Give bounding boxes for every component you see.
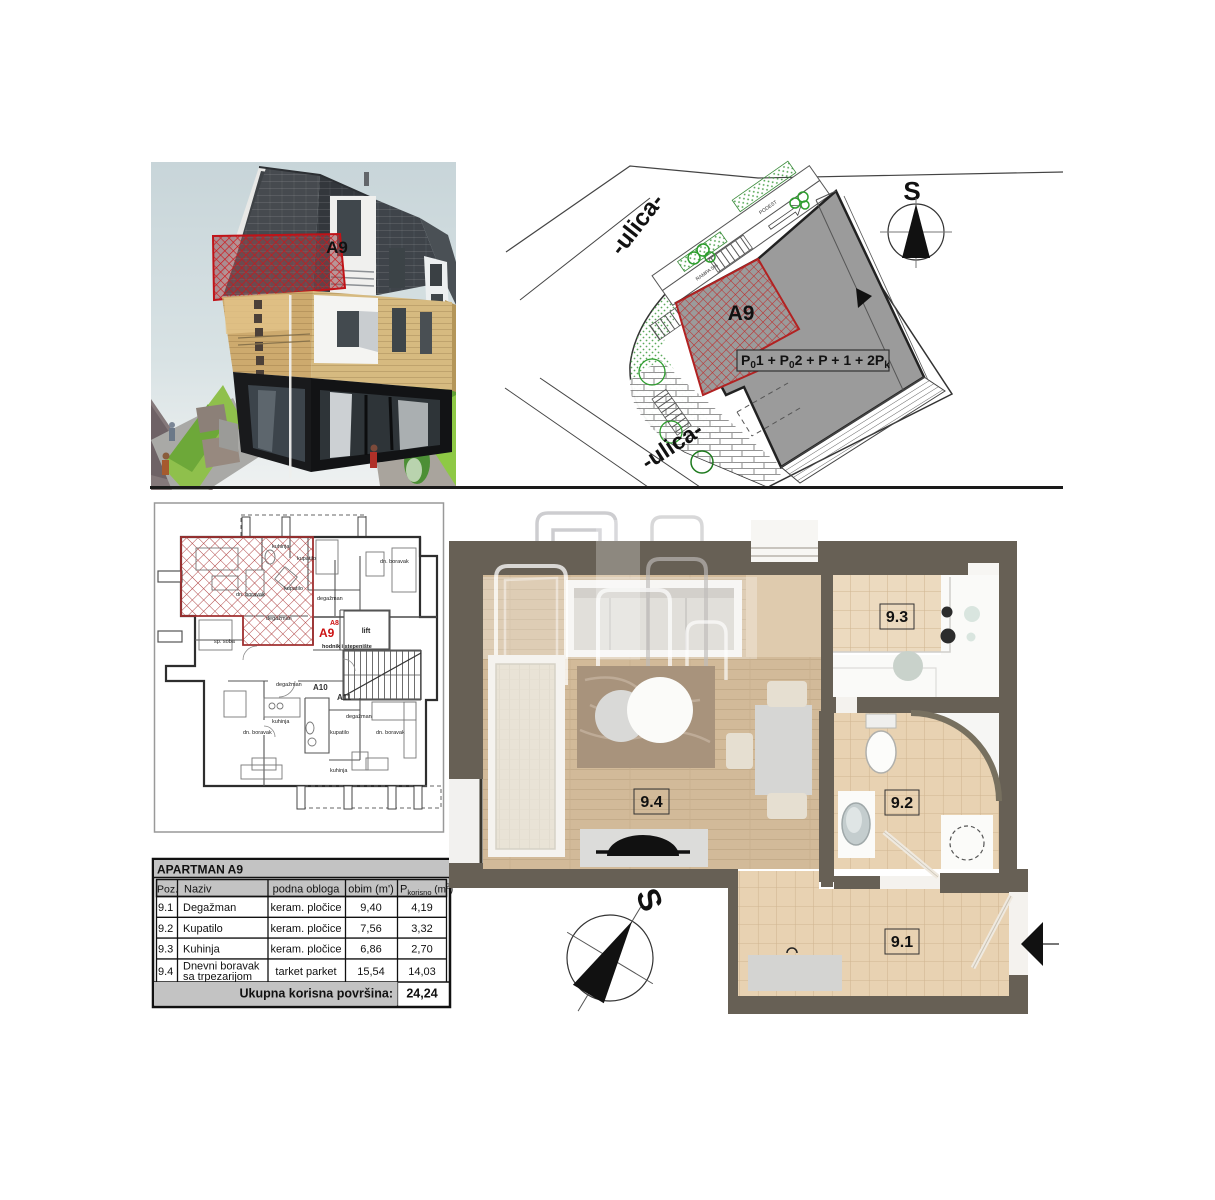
- svg-text:6,86: 6,86: [360, 944, 381, 956]
- svg-text:9.4: 9.4: [158, 966, 173, 978]
- svg-text:-ulica-: -ulica-: [605, 188, 670, 260]
- svg-text:3,32: 3,32: [411, 923, 432, 935]
- svg-text:keram. pločice: keram. pločice: [271, 944, 342, 956]
- svg-text:4,19: 4,19: [411, 902, 432, 914]
- svg-text:kuhinja: kuhinja: [272, 719, 290, 725]
- svg-text:A10: A10: [313, 683, 328, 692]
- svg-text:kupatilo: kupatilo: [330, 730, 349, 736]
- svg-text:kupatilo: kupatilo: [284, 586, 303, 592]
- svg-text:15,54: 15,54: [357, 966, 385, 978]
- svg-text:9.3: 9.3: [886, 609, 908, 626]
- svg-text:dn. boravak: dn. boravak: [236, 592, 265, 598]
- svg-text:degažman: degažman: [346, 714, 372, 720]
- svg-text:S: S: [629, 883, 670, 916]
- svg-text:degažman: degažman: [266, 616, 292, 622]
- svg-text:A9: A9: [319, 626, 335, 640]
- svg-text:9.2: 9.2: [891, 795, 913, 812]
- svg-text:Kupatilo: Kupatilo: [183, 923, 223, 935]
- svg-text:Ukupna korisna površina:: Ukupna korisna površina:: [239, 987, 393, 1001]
- svg-text:A9: A9: [728, 302, 755, 325]
- svg-text:kupatilo: kupatilo: [297, 556, 316, 562]
- svg-text:sp. soba: sp. soba: [214, 639, 236, 645]
- svg-text:A11: A11: [337, 693, 352, 702]
- svg-text:9.1: 9.1: [158, 902, 173, 914]
- svg-text:14,03: 14,03: [408, 966, 436, 978]
- svg-text:APARTMAN A9: APARTMAN A9: [157, 863, 243, 877]
- svg-text:A9: A9: [326, 238, 348, 257]
- svg-text:lift: lift: [362, 628, 371, 635]
- svg-text:Kuhinja: Kuhinja: [183, 944, 221, 956]
- svg-text:degažman: degažman: [317, 596, 343, 602]
- svg-text:2,70: 2,70: [411, 944, 432, 956]
- svg-text:dn. boravak: dn. boravak: [380, 559, 409, 565]
- svg-text:Poz.: Poz.: [157, 884, 178, 896]
- svg-text:obim (m'): obim (m'): [348, 884, 394, 896]
- svg-text:keram. pločice: keram. pločice: [271, 923, 342, 935]
- svg-text:9.1: 9.1: [891, 934, 913, 951]
- svg-text:24,24: 24,24: [406, 987, 437, 1001]
- svg-text:A8: A8: [330, 620, 339, 627]
- svg-text:hodnik i stepenište: hodnik i stepenište: [322, 644, 372, 650]
- svg-text:tarket parket: tarket parket: [275, 966, 336, 978]
- svg-text:Degažman: Degažman: [183, 902, 236, 914]
- svg-text:kuhinja: kuhinja: [272, 544, 290, 550]
- svg-text:degažman: degažman: [276, 682, 302, 688]
- svg-text:9.4: 9.4: [640, 794, 662, 811]
- svg-text:keram. pločice: keram. pločice: [271, 902, 342, 914]
- svg-text:9.3: 9.3: [158, 944, 173, 956]
- svg-text:9,40: 9,40: [360, 902, 381, 914]
- svg-text:dn. boravak: dn. boravak: [243, 730, 272, 736]
- svg-text:kuhinja: kuhinja: [330, 768, 348, 774]
- svg-text:9.2: 9.2: [158, 923, 173, 935]
- svg-text:S: S: [903, 176, 920, 206]
- svg-text:podna obloga: podna obloga: [273, 884, 341, 896]
- svg-text:Naziv: Naziv: [184, 884, 212, 896]
- svg-text:7,56: 7,56: [360, 923, 381, 935]
- svg-text:sa trpezarijom: sa trpezarijom: [183, 971, 252, 983]
- svg-text:dn. boravak: dn. boravak: [376, 730, 405, 736]
